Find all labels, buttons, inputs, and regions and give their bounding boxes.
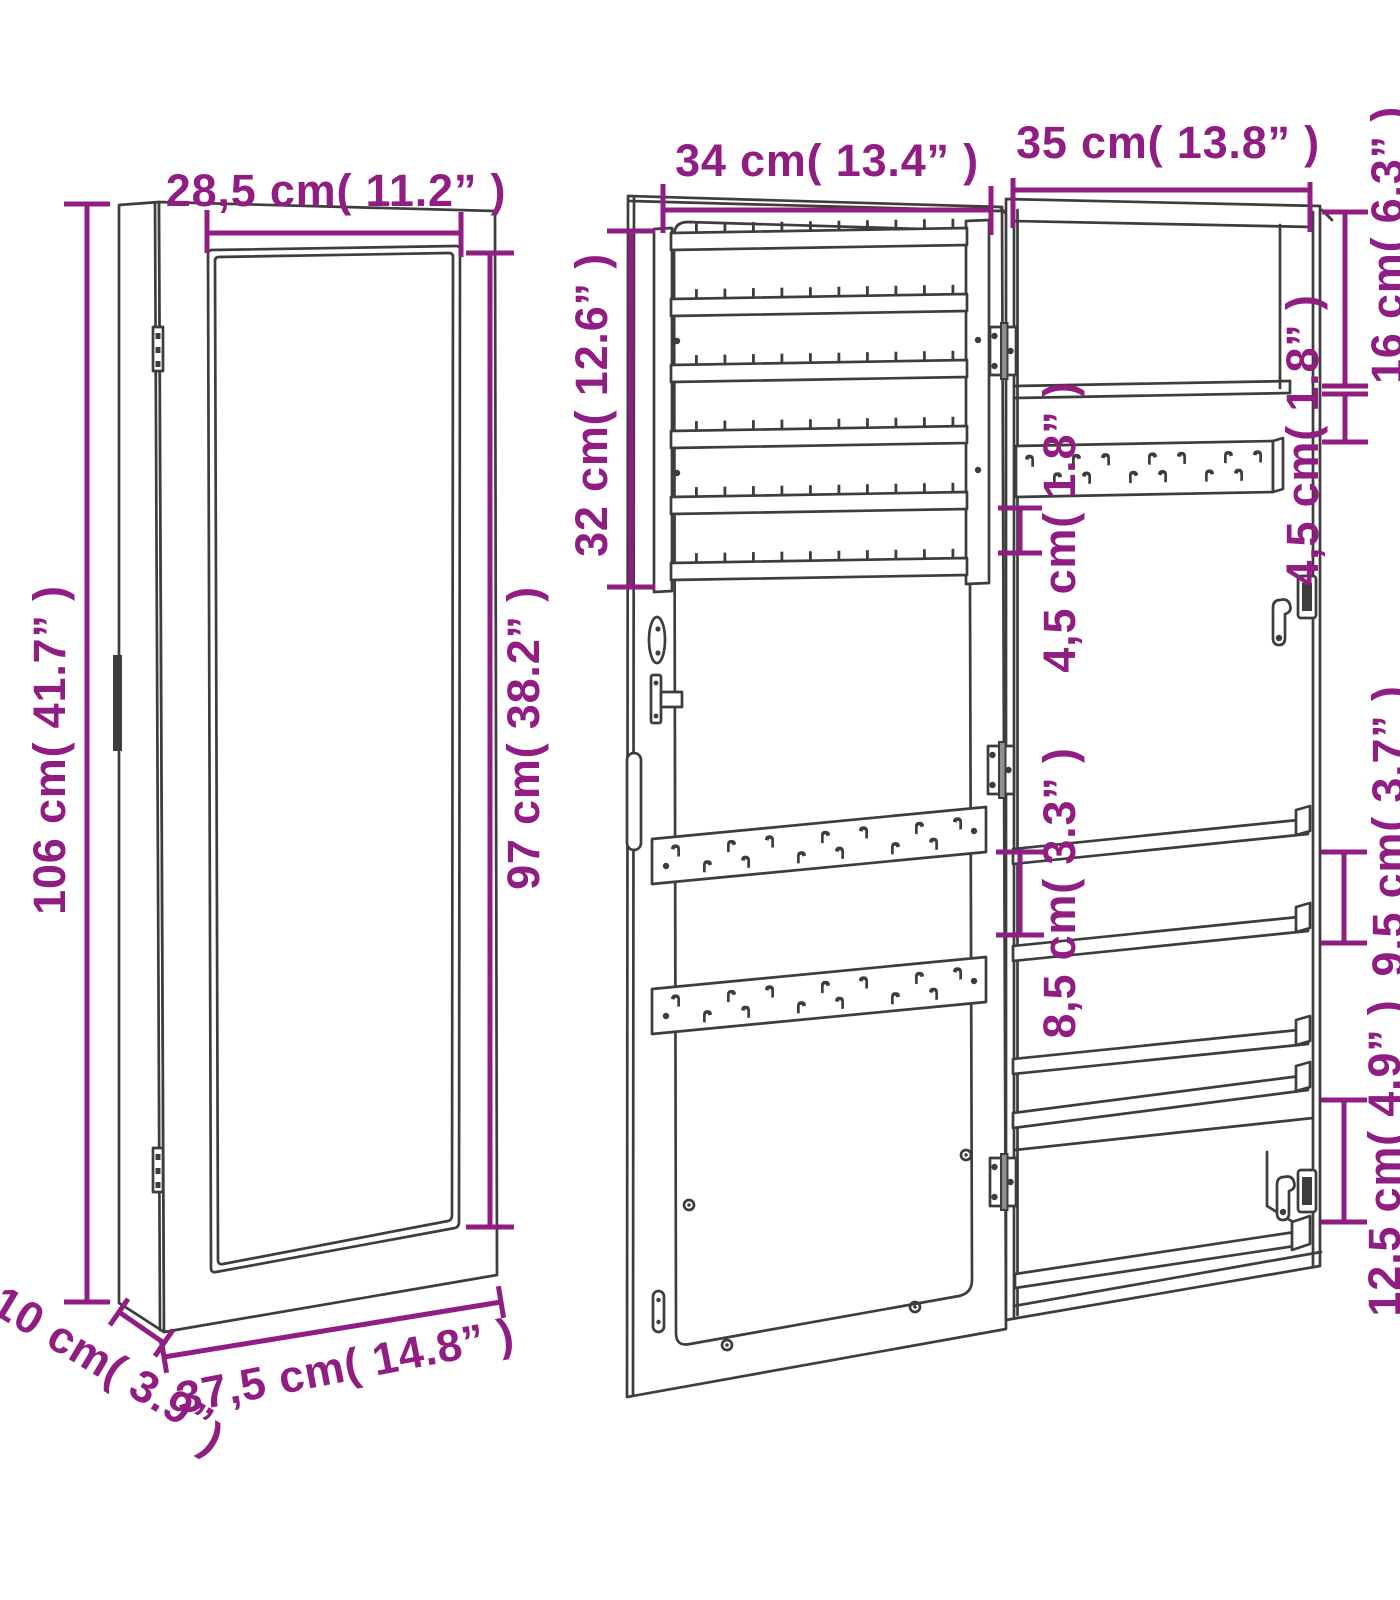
svg-text:32 cm( 12.6” ): 32 cm( 12.6” ) xyxy=(566,253,617,557)
svg-text:97 cm( 38.2” ): 97 cm( 38.2” ) xyxy=(498,586,549,890)
svg-text:4,5 cm( 1.8” ): 4,5 cm( 1.8” ) xyxy=(1034,381,1085,672)
svg-text:28,5 cm( 11.2” ): 28,5 cm( 11.2” ) xyxy=(166,165,507,216)
svg-text:4,5 cm( 1.8” ): 4,5 cm( 1.8” ) xyxy=(1277,294,1328,585)
svg-text:9,5 cm( 3.7” ): 9,5 cm( 3.7” ) xyxy=(1363,685,1400,976)
svg-text:12,5 cm( 4.9” ): 12,5 cm( 4.9” ) xyxy=(1359,999,1400,1316)
svg-text:35 cm( 13.8” ): 35 cm( 13.8” ) xyxy=(1016,117,1320,168)
svg-text:8,5 cm( 3.3” ): 8,5 cm( 3.3” ) xyxy=(1034,747,1085,1038)
svg-text:34 cm( 13.4” ): 34 cm( 13.4” ) xyxy=(675,135,979,186)
svg-text:106 cm( 41.7” ): 106 cm( 41.7” ) xyxy=(24,585,75,915)
svg-text:16 cm( 6.3” ): 16 cm( 6.3” ) xyxy=(1362,106,1400,384)
